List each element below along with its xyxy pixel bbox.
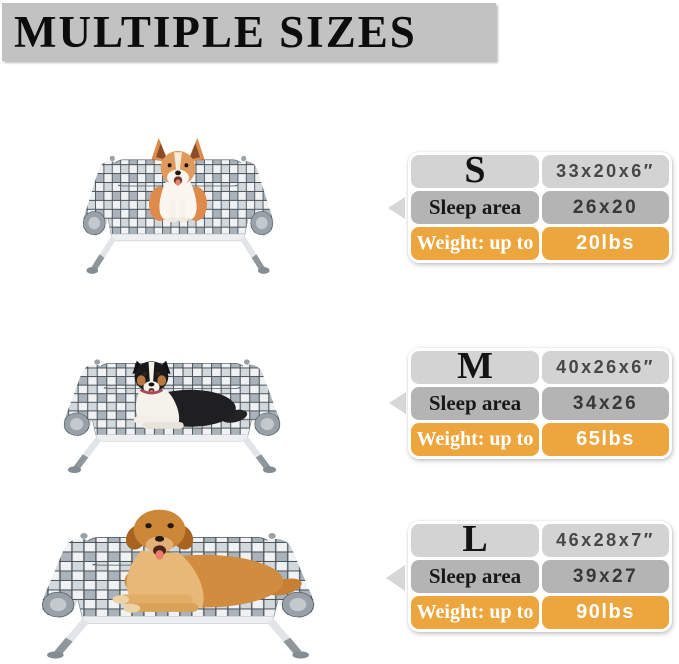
weight-value: 65lbs — [542, 423, 669, 456]
table-row: M 40x26x6″ — [411, 351, 669, 384]
triangle-left-icon — [386, 565, 405, 591]
size-table-l: L 46x28x7″ Sleep area 39x27 Weight: up t… — [408, 521, 672, 632]
weight-value: 20lbs — [542, 227, 669, 260]
weight-label: Weight: up to — [411, 423, 539, 456]
size-banner: MULTIPLE SIZES — [2, 3, 496, 61]
table-row: Sleep area 26x20 — [411, 191, 669, 224]
table-row: L 46x28x7″ — [411, 524, 669, 557]
table-row: Weight: up to 90lbs — [411, 596, 669, 629]
weight-label: Weight: up to — [411, 227, 539, 260]
weight-label: Weight: up to — [411, 596, 539, 629]
product-photo-size-l — [12, 495, 344, 663]
triangle-left-icon — [388, 197, 405, 219]
table-row: Weight: up to 20lbs — [411, 227, 669, 260]
sleep-area-value: 34x26 — [542, 387, 669, 420]
sleep-area-label: Sleep area — [411, 387, 539, 420]
product-photo-size-s — [62, 120, 294, 278]
size-table-s: S 33x20x6″ Sleep area 26x20 Weight: up t… — [408, 152, 672, 263]
table-row: Sleep area 34x26 — [411, 387, 669, 420]
page-title: MULTIPLE SIZES — [14, 6, 417, 58]
sleep-area-value: 39x27 — [542, 560, 669, 593]
size-table-m: M 40x26x6″ Sleep area 34x26 Weight: up t… — [408, 348, 672, 459]
sleep-area-label: Sleep area — [411, 191, 539, 224]
sleep-area-value: 26x20 — [542, 191, 669, 224]
triangle-left-icon — [389, 392, 406, 414]
table-row: Sleep area 39x27 — [411, 560, 669, 593]
table-row: S 33x20x6″ — [411, 155, 669, 188]
size-letter: L — [411, 524, 539, 557]
size-dimensions: 46x28x7″ — [542, 524, 669, 557]
product-photo-size-m — [40, 325, 304, 477]
size-dimensions: 33x20x6″ — [542, 155, 669, 188]
table-row: Weight: up to 65lbs — [411, 423, 669, 456]
size-letter: S — [411, 155, 539, 188]
size-letter: M — [411, 351, 539, 384]
sleep-area-label: Sleep area — [411, 560, 539, 593]
size-dimensions: 40x26x6″ — [542, 351, 669, 384]
weight-value: 90lbs — [542, 596, 669, 629]
